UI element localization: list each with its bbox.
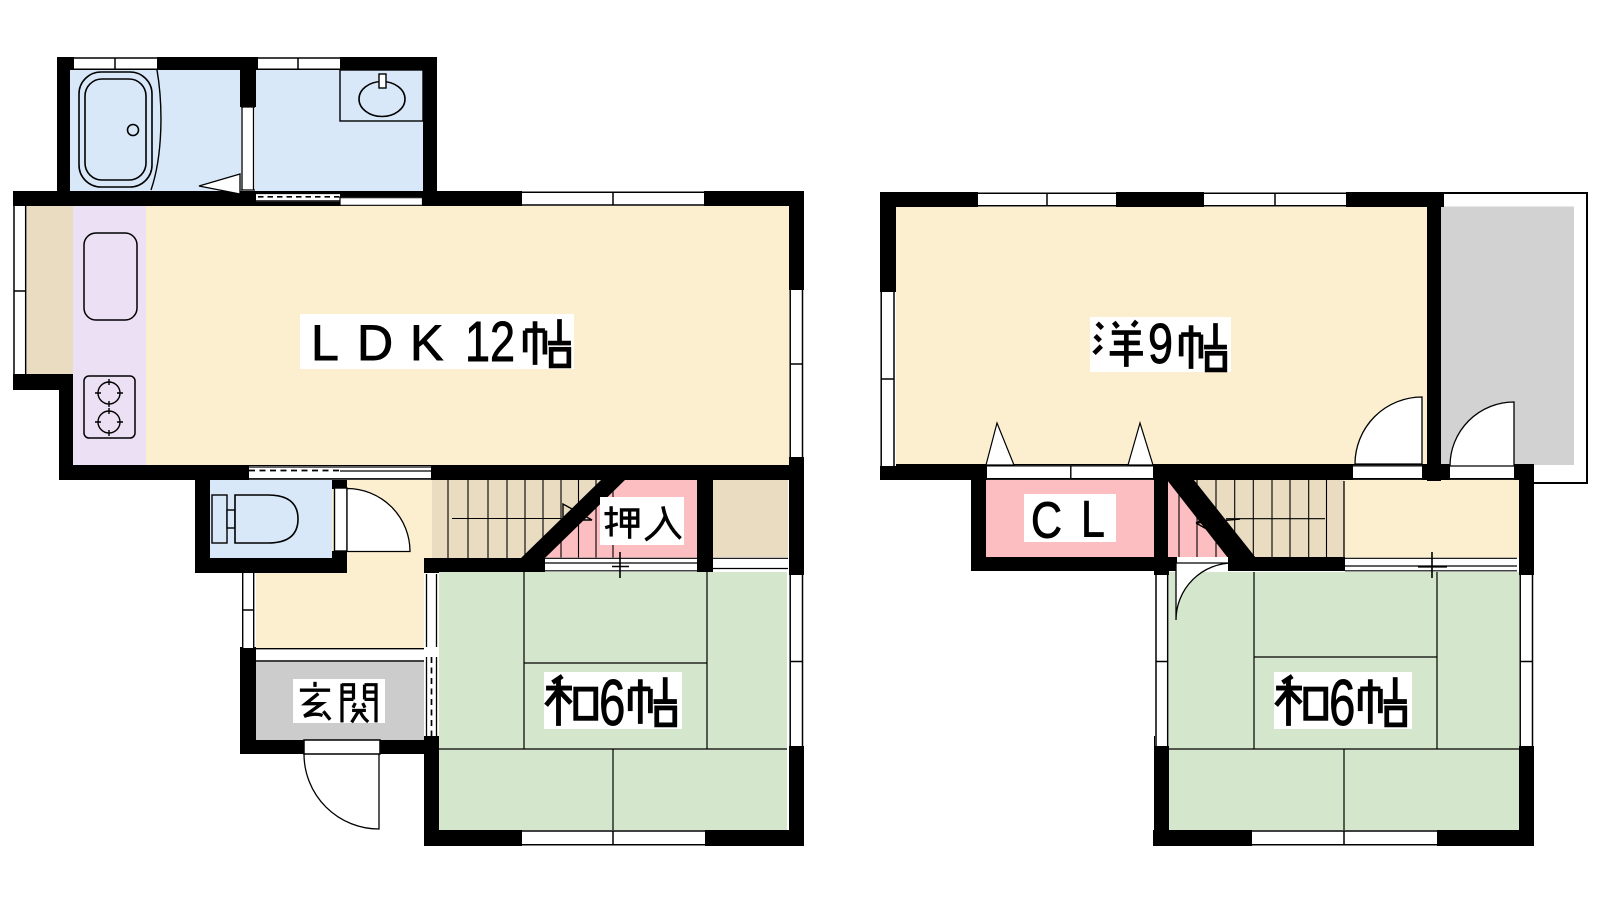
svg-text:D: D bbox=[357, 315, 393, 371]
svg-text:6: 6 bbox=[599, 667, 625, 740]
svg-text:L: L bbox=[1081, 490, 1105, 547]
svg-text:9: 9 bbox=[1148, 312, 1173, 375]
svg-text:C: C bbox=[1031, 491, 1062, 548]
svg-text:L: L bbox=[311, 315, 339, 371]
svg-text:K: K bbox=[410, 315, 443, 371]
svg-text:12: 12 bbox=[465, 310, 515, 373]
svg-text:6: 6 bbox=[1329, 667, 1355, 740]
